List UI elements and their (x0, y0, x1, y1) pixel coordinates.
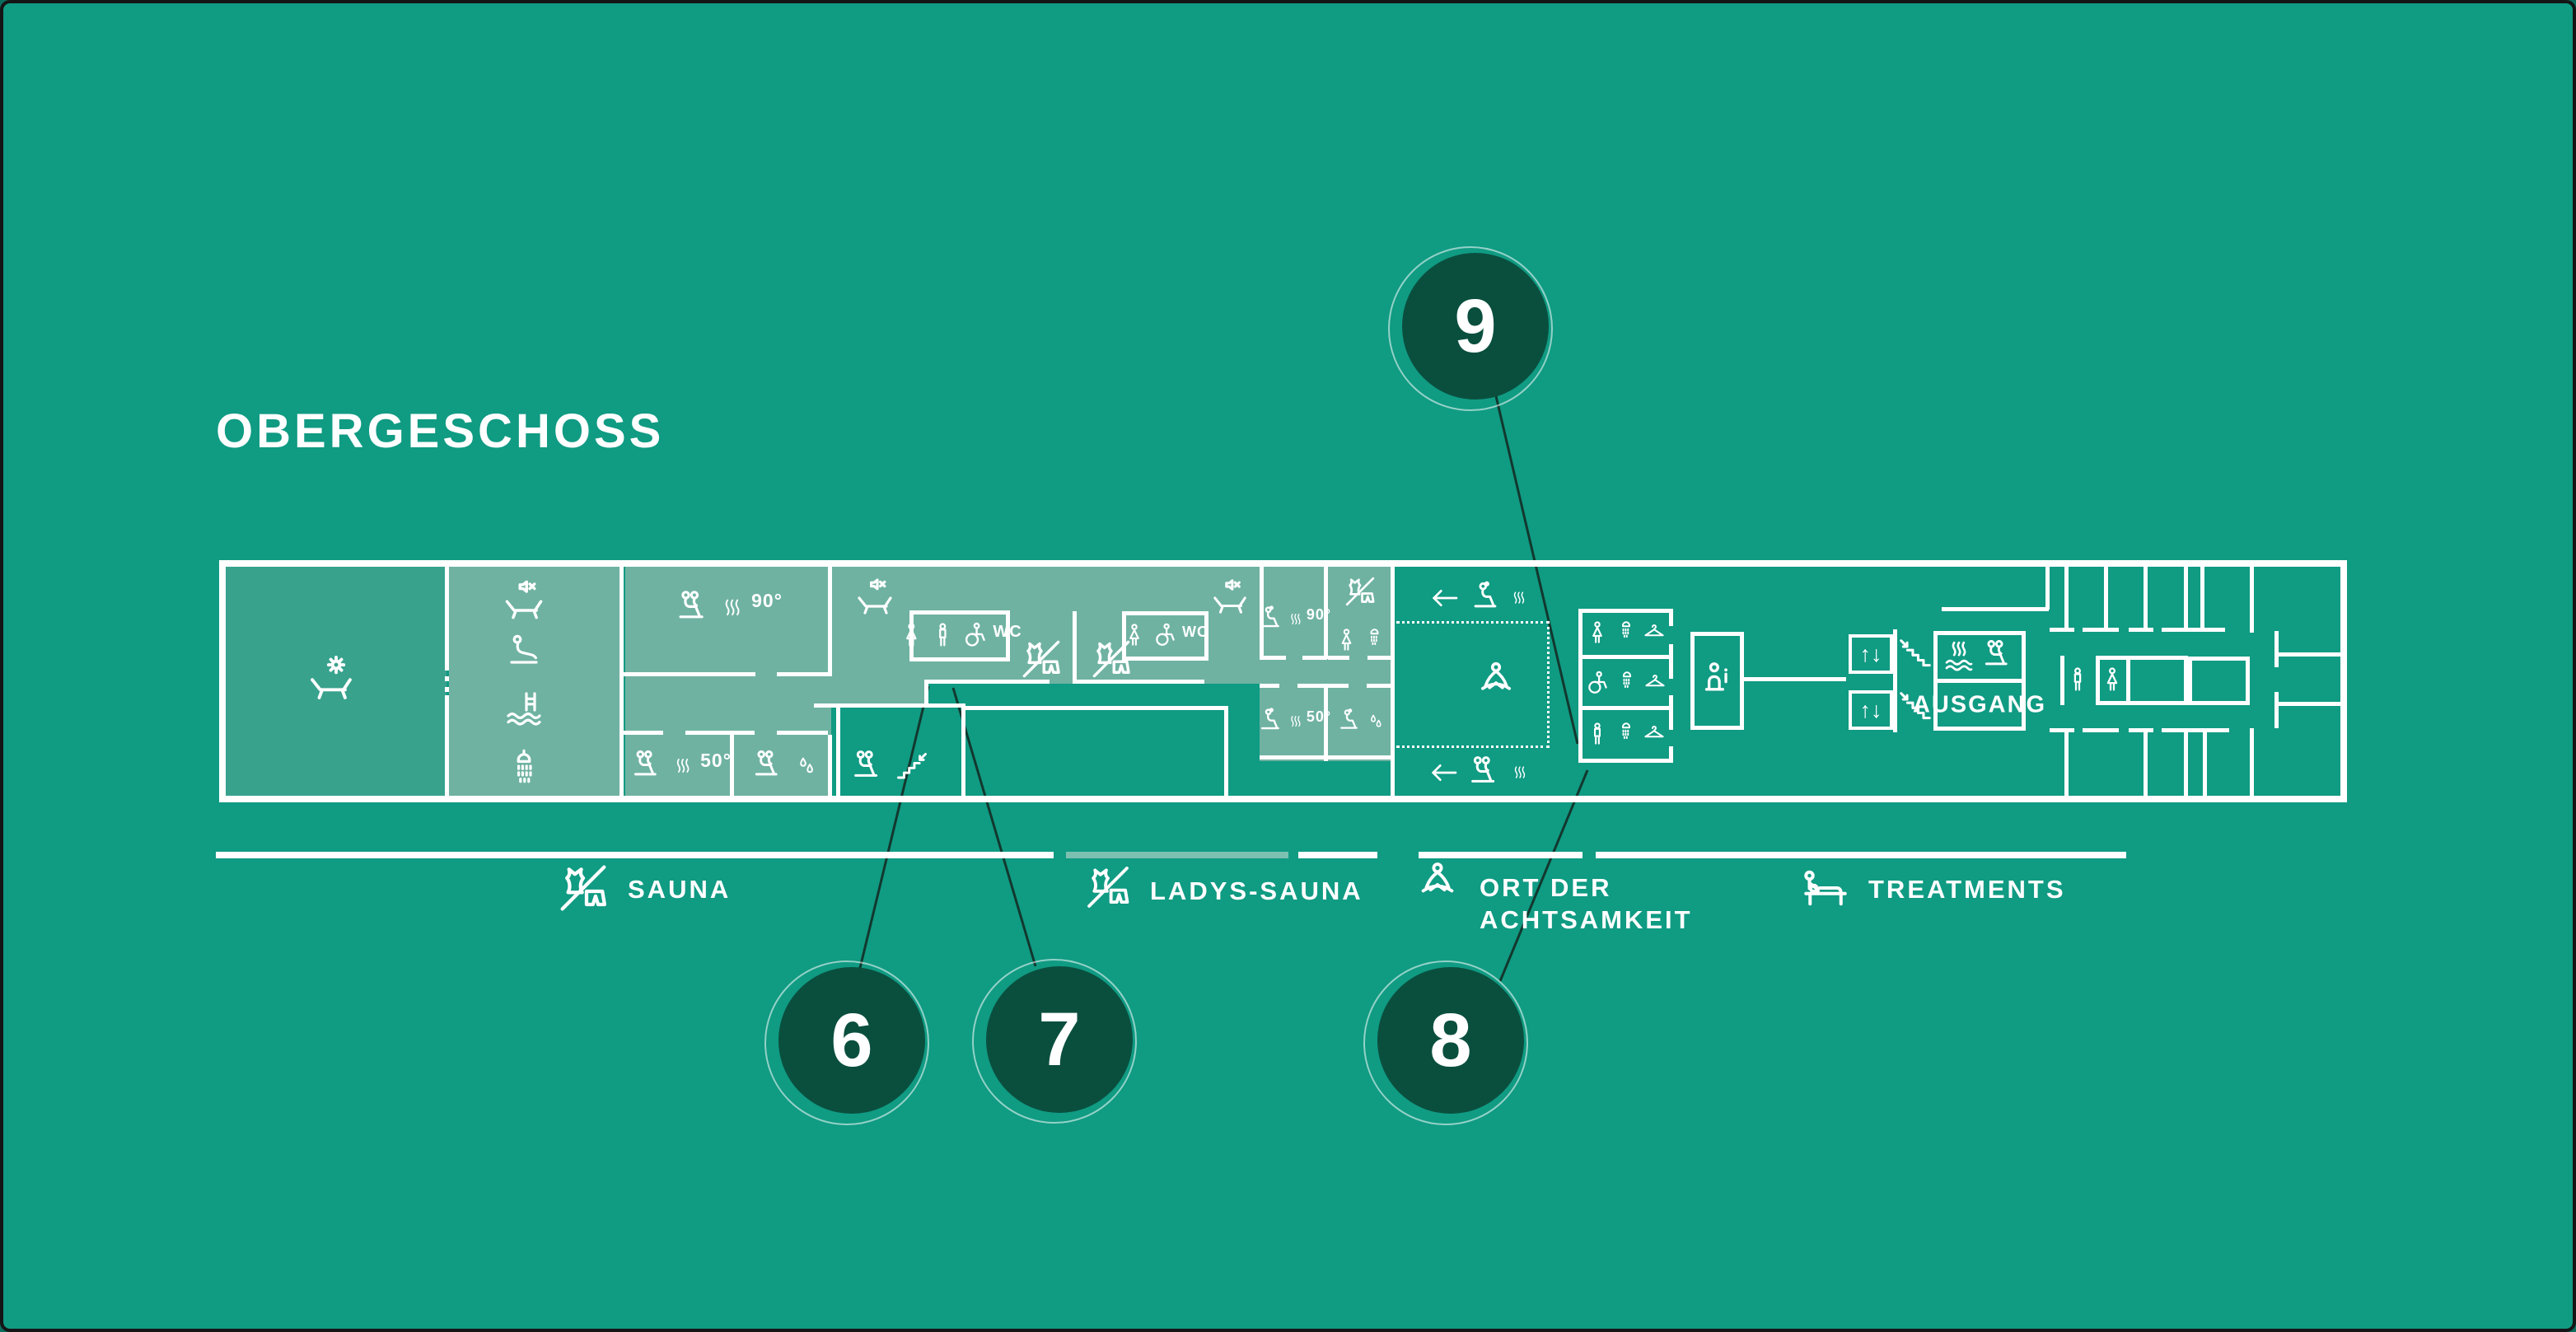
wall-segment (2104, 567, 2108, 628)
wall-segment (828, 567, 832, 676)
sun-lounger-icon (307, 655, 355, 703)
wall-segment (1260, 755, 1395, 759)
wall-segment (2083, 628, 2119, 632)
steam-icon (1288, 712, 1304, 731)
wall-segment (2250, 728, 2254, 796)
sauna-woman-icon (1255, 707, 1285, 736)
wc-woman-icon (1584, 620, 1611, 647)
no-swimwear-icon (1344, 575, 1377, 608)
arrow-left-icon (1427, 756, 1460, 789)
legend-label: ACHTSAMKEIT (1480, 905, 1693, 934)
wall-segment (777, 672, 832, 676)
sauna-group-icon (629, 748, 666, 784)
elevator-icon: ↑↓ (1849, 690, 1893, 730)
legend-item-sauna: SAUNA (557, 862, 731, 914)
sauna-woman-icon (1255, 605, 1285, 634)
hanger-icon (1642, 722, 1667, 747)
wc-woman-icon (1121, 623, 1148, 649)
shower-head-icon (1614, 722, 1639, 747)
wall-segment (445, 666, 449, 695)
wall-segment (2144, 732, 2148, 796)
temperature-label: 50° (1307, 708, 1331, 726)
no-swimwear-icon (1020, 638, 1063, 680)
wall-segment (2274, 652, 2340, 657)
wall-segment (624, 731, 663, 735)
marker-number: 7 (1038, 997, 1080, 1083)
wall-segment (2200, 567, 2204, 628)
treatment-room-empty (2188, 657, 2250, 705)
massage-icon (1801, 862, 1850, 911)
wall-segment (2250, 567, 2254, 633)
wall-segment (2184, 567, 2188, 628)
elevator-arrows: ↑↓ (1860, 698, 1882, 723)
water-drops-icon (1366, 712, 1386, 731)
steam-icon (720, 594, 745, 622)
legend-label: ORT DER (1480, 873, 1612, 902)
wc-woman-icon (897, 622, 925, 650)
marker-7[interactable]: 7 (986, 966, 1133, 1113)
wall-segment (2184, 732, 2188, 796)
legend-line-ort-der (1419, 852, 1583, 858)
pool-ladder-icon (504, 689, 544, 728)
wc-label: WC (993, 623, 1022, 642)
wall-segment (2203, 732, 2207, 796)
lounger-mute-icon (503, 578, 545, 621)
arrow-left-icon (1428, 582, 1461, 615)
legend-item-treatments: TREATMENTS (1801, 862, 2066, 911)
wall-segment (2064, 732, 2069, 796)
steam-icon (1510, 587, 1528, 609)
temperature-label: 90° (1307, 606, 1331, 624)
legend-line-short (1298, 852, 1377, 858)
info-desk-icon (1696, 660, 1737, 701)
wall-segment (2144, 567, 2148, 628)
wall-segment (1224, 710, 1228, 796)
wall-segment (2129, 628, 2153, 632)
stairs-down-icon (894, 749, 930, 785)
wall-segment (2274, 692, 2279, 728)
hanger-icon (1642, 621, 1667, 646)
person-seated-icon (504, 632, 544, 671)
legend-label: LADYS-SAUNA (1150, 875, 1363, 907)
sauna-group-icon (1466, 754, 1504, 792)
wall-segment (2274, 631, 2279, 667)
wall-segment (2050, 628, 2074, 632)
wall-segment (1260, 656, 1286, 660)
wc-man-icon (928, 622, 956, 650)
marker-6[interactable]: 6 (778, 967, 925, 1114)
shower-head-icon (1615, 671, 1639, 696)
legend-label: TREATMENTS (1868, 873, 2066, 905)
marker-number: 9 (1454, 283, 1496, 370)
wall-segment (1367, 656, 1391, 660)
wall-segment (685, 731, 755, 735)
legend-label: SAUNA (628, 873, 731, 905)
elevator-icon: ↑↓ (1849, 634, 1893, 674)
wall-segment (619, 567, 624, 796)
wall-segment (828, 735, 832, 796)
lounger-mute-icon (855, 577, 895, 616)
wall-segment (777, 731, 828, 735)
wall-segment (1328, 656, 1349, 660)
stairs-down-icon (1896, 635, 1934, 673)
steam-icon (1511, 762, 1529, 783)
water-drops-icon (793, 754, 818, 778)
no-swimwear-icon (557, 862, 610, 914)
marker-number: 8 (1429, 998, 1471, 1084)
temperature-label: 50° (700, 750, 732, 772)
hanger-icon (1643, 671, 1667, 696)
wc-label: WC (1182, 624, 1209, 641)
wall-segment (2083, 728, 2119, 732)
shower-head-icon (1614, 621, 1639, 646)
marker-number: 6 (830, 998, 872, 1084)
mindfulness-room (1396, 621, 1550, 748)
wall-segment (2050, 728, 2074, 732)
wheelchair-icon (960, 621, 989, 651)
wheelchair-icon (1151, 622, 1179, 650)
meditation-icon (1474, 660, 1518, 704)
wall-segment (2064, 567, 2069, 628)
steam-icon (1288, 610, 1304, 629)
no-swimwear-icon (1084, 863, 1132, 911)
wall-segment (924, 684, 928, 708)
wall-segment (1942, 607, 2049, 611)
legend-line-treatments (1596, 852, 2126, 858)
floor-plan: ↑↓ ↑↓ 90° 50° WC (219, 560, 2347, 802)
wall-segment (624, 672, 755, 676)
sauna-woman-icon (1335, 708, 1363, 736)
lounger-mute-icon (1211, 577, 1249, 615)
legend-line-sauna (216, 852, 1054, 858)
wc-man-icon (2064, 666, 2092, 694)
ausgang-label: AUSGANG (1913, 692, 2046, 719)
wall-segment (445, 567, 449, 666)
wall-segment (965, 706, 1228, 710)
wall-segment (2178, 628, 2225, 632)
wheelchair-icon (1583, 670, 1611, 698)
sauna-group-icon (1980, 638, 2017, 674)
shower-icon (504, 747, 544, 787)
sauna-woman-icon (1467, 580, 1503, 616)
steam-water-icon (1943, 639, 1975, 672)
wall-segment (1391, 567, 1395, 796)
wall-segment (1297, 684, 1349, 688)
legend-item-ort-der-achtsamkeit: ORT DER ACHTSAMKEIT (1414, 860, 1693, 936)
sauna-group-icon (849, 748, 887, 786)
sauna-group-icon (674, 588, 713, 628)
legend-item-ladys-sauna: LADYS-SAUNA (1084, 863, 1363, 911)
wall-segment (1367, 684, 1391, 688)
shower-head-icon (1363, 629, 1387, 653)
steam-icon (672, 754, 694, 778)
wc-man-icon (1584, 722, 1611, 748)
wall-segment (2129, 728, 2153, 732)
wall-segment (1260, 684, 1279, 688)
marker-9[interactable]: 9 (1402, 253, 1549, 400)
sauna-group-icon (750, 748, 787, 784)
wall-segment (2045, 567, 2050, 610)
wc-woman-icon (1334, 628, 1360, 654)
wall-segment (961, 708, 965, 796)
wall-segment (836, 708, 840, 796)
marker-8[interactable]: 8 (1377, 967, 1524, 1114)
temperature-label: 90° (751, 590, 783, 612)
wc-woman-icon (2098, 666, 2126, 694)
floor-plan-page: OBERGESCHOSS (0, 0, 2576, 1332)
meditation-icon (1414, 860, 1461, 908)
wall-segment (1744, 677, 1846, 681)
legend-line-ladys-sauna (1066, 852, 1288, 858)
wall-segment (2274, 702, 2340, 706)
wall-segment (1073, 611, 1077, 680)
wall-segment (445, 695, 449, 796)
elevator-arrows: ↑↓ (1860, 642, 1882, 667)
